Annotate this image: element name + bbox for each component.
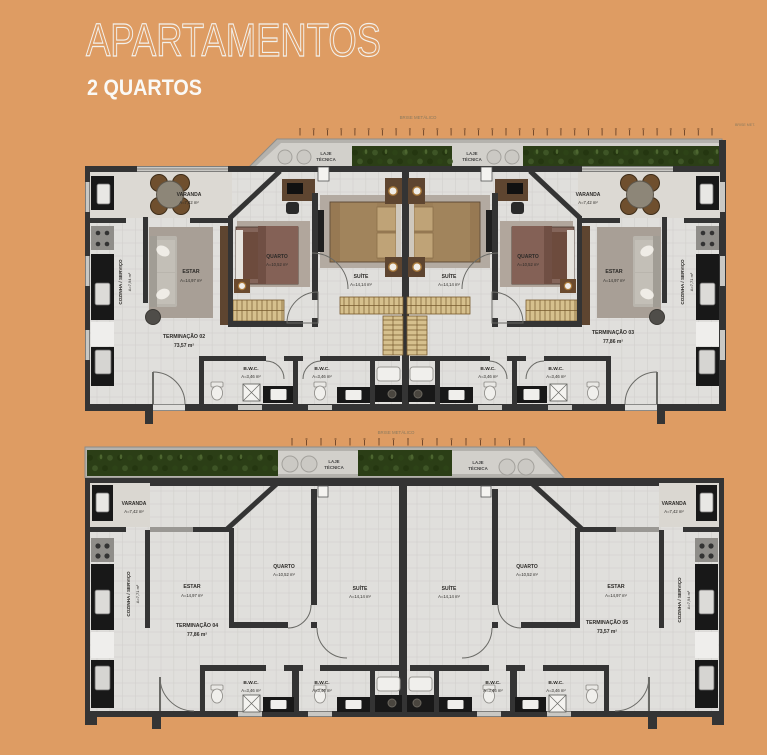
svg-text:A=3,46 m²: A=3,46 m²	[312, 688, 332, 693]
svg-text:TERMINAÇÃO 05: TERMINAÇÃO 05	[586, 619, 628, 626]
svg-text:SUÍTE: SUÍTE	[442, 272, 457, 280]
svg-text:TÉCNICA: TÉCNICA	[324, 465, 344, 470]
svg-text:A=3,46 m²: A=3,46 m²	[546, 688, 566, 693]
svg-text:A=3,46 m²: A=3,46 m²	[241, 688, 261, 693]
svg-text:TERMINAÇÃO 02: TERMINAÇÃO 02	[163, 333, 205, 340]
svg-text:LAJE: LAJE	[472, 460, 483, 465]
svg-text:B.W.C.: B.W.C.	[314, 366, 329, 372]
svg-text:LAJE: LAJE	[328, 459, 339, 464]
svg-text:77,86 m²: 77,86 m²	[603, 339, 623, 345]
svg-text:A=14,97 m²: A=14,97 m²	[603, 278, 625, 283]
svg-text:A=7,42 m²: A=7,42 m²	[124, 509, 144, 514]
svg-text:A=7,71 m²: A=7,71 m²	[689, 272, 694, 291]
svg-text:A=3,46 m²: A=3,46 m²	[312, 374, 332, 379]
svg-text:73,57 m²: 73,57 m²	[174, 343, 194, 349]
svg-text:VARANDA: VARANDA	[662, 501, 687, 507]
svg-text:COZINHA / SERVIÇO: COZINHA / SERVIÇO	[677, 577, 682, 623]
svg-text:A=7,42 m²: A=7,42 m²	[664, 509, 684, 514]
svg-text:B.W.C.: B.W.C.	[480, 366, 495, 372]
svg-text:A=10,52 m²: A=10,52 m²	[266, 262, 288, 267]
svg-text:B.W.C.: B.W.C.	[314, 680, 329, 686]
svg-text:ESTAR: ESTAR	[182, 269, 199, 275]
svg-text:A=7,71 m²: A=7,71 m²	[135, 584, 140, 603]
svg-text:VARANDA: VARANDA	[122, 501, 147, 507]
svg-text:QUARTO: QUARTO	[266, 254, 288, 260]
svg-text:TÉCNICA: TÉCNICA	[316, 157, 336, 162]
svg-text:73,57 m²: 73,57 m²	[597, 629, 617, 635]
svg-text:B.W.C.: B.W.C.	[485, 680, 500, 686]
svg-text:TÉCNICA: TÉCNICA	[462, 157, 482, 162]
svg-text:TERMINAÇÃO 04: TERMINAÇÃO 04	[176, 622, 218, 629]
svg-text:A=7,94 m²: A=7,94 m²	[686, 590, 691, 609]
svg-text:A=14,97 m²: A=14,97 m²	[605, 593, 627, 598]
svg-text:A=3,46 m²: A=3,46 m²	[483, 688, 503, 693]
svg-text:A=14,14 m²: A=14,14 m²	[438, 594, 460, 599]
svg-text:A=3,46 m²: A=3,46 m²	[546, 374, 566, 379]
svg-text:COZINHA / SERVIÇO: COZINHA / SERVIÇO	[680, 259, 685, 305]
svg-text:QUARTO: QUARTO	[273, 564, 295, 570]
svg-text:A=14,97 m²: A=14,97 m²	[181, 593, 203, 598]
svg-text:A=10,52 m²: A=10,52 m²	[517, 262, 539, 267]
svg-text:APARTAMENTOS: APARTAMENTOS	[86, 14, 381, 66]
svg-text:COZINHA / SERVIÇO: COZINHA / SERVIÇO	[118, 259, 123, 305]
svg-text:VARANDA: VARANDA	[177, 192, 202, 198]
svg-text:QUARTO: QUARTO	[516, 564, 538, 570]
svg-text:COZINHA / SERVIÇO: COZINHA / SERVIÇO	[126, 571, 131, 617]
svg-text:B.W.C.: B.W.C.	[548, 366, 563, 372]
svg-text:A=7,42 m²: A=7,42 m²	[179, 200, 199, 205]
svg-text:BRISE METÁLICO: BRISE METÁLICO	[400, 115, 437, 120]
svg-text:A=14,14 m²: A=14,14 m²	[350, 282, 372, 287]
svg-text:A=14,97 m²: A=14,97 m²	[180, 278, 202, 283]
svg-text:A=3,46 m²: A=3,46 m²	[241, 374, 261, 379]
svg-text:B.W.C.: B.W.C.	[548, 680, 563, 686]
svg-text:77,86 m²: 77,86 m²	[187, 632, 207, 638]
svg-text:A=14,14 m²: A=14,14 m²	[438, 282, 460, 287]
svg-text:LAJE: LAJE	[466, 151, 477, 156]
svg-text:ESTAR: ESTAR	[183, 584, 200, 590]
svg-text:SUÍTE: SUÍTE	[354, 272, 369, 280]
svg-text:A=10,52 m²: A=10,52 m²	[273, 572, 295, 577]
svg-text:VARANDA: VARANDA	[576, 192, 601, 198]
svg-text:SUÍTE: SUÍTE	[353, 584, 368, 592]
svg-text:ESTAR: ESTAR	[605, 269, 622, 275]
svg-text:TÉCNICA: TÉCNICA	[468, 466, 488, 471]
svg-text:B.W.C.: B.W.C.	[243, 366, 258, 372]
svg-text:LAJE: LAJE	[320, 151, 331, 156]
svg-text:A=3,46 m²: A=3,46 m²	[478, 374, 498, 379]
svg-text:BRISE MET.: BRISE MET.	[735, 123, 755, 127]
svg-text:A=7,94 m²: A=7,94 m²	[127, 272, 132, 291]
svg-text:A=14,14 m²: A=14,14 m²	[349, 594, 371, 599]
svg-text:QUARTO: QUARTO	[517, 254, 539, 260]
svg-text:2 QUARTOS: 2 QUARTOS	[87, 75, 202, 100]
svg-text:A=10,52 m²: A=10,52 m²	[516, 572, 538, 577]
svg-text:TERMINAÇÃO 03: TERMINAÇÃO 03	[592, 329, 634, 336]
svg-text:A=7,42 m²: A=7,42 m²	[578, 200, 598, 205]
svg-text:BRISE METÁLICO: BRISE METÁLICO	[378, 430, 415, 435]
svg-text:ESTAR: ESTAR	[607, 584, 624, 590]
svg-text:SUÍTE: SUÍTE	[442, 584, 457, 592]
svg-text:B.W.C.: B.W.C.	[243, 680, 258, 686]
